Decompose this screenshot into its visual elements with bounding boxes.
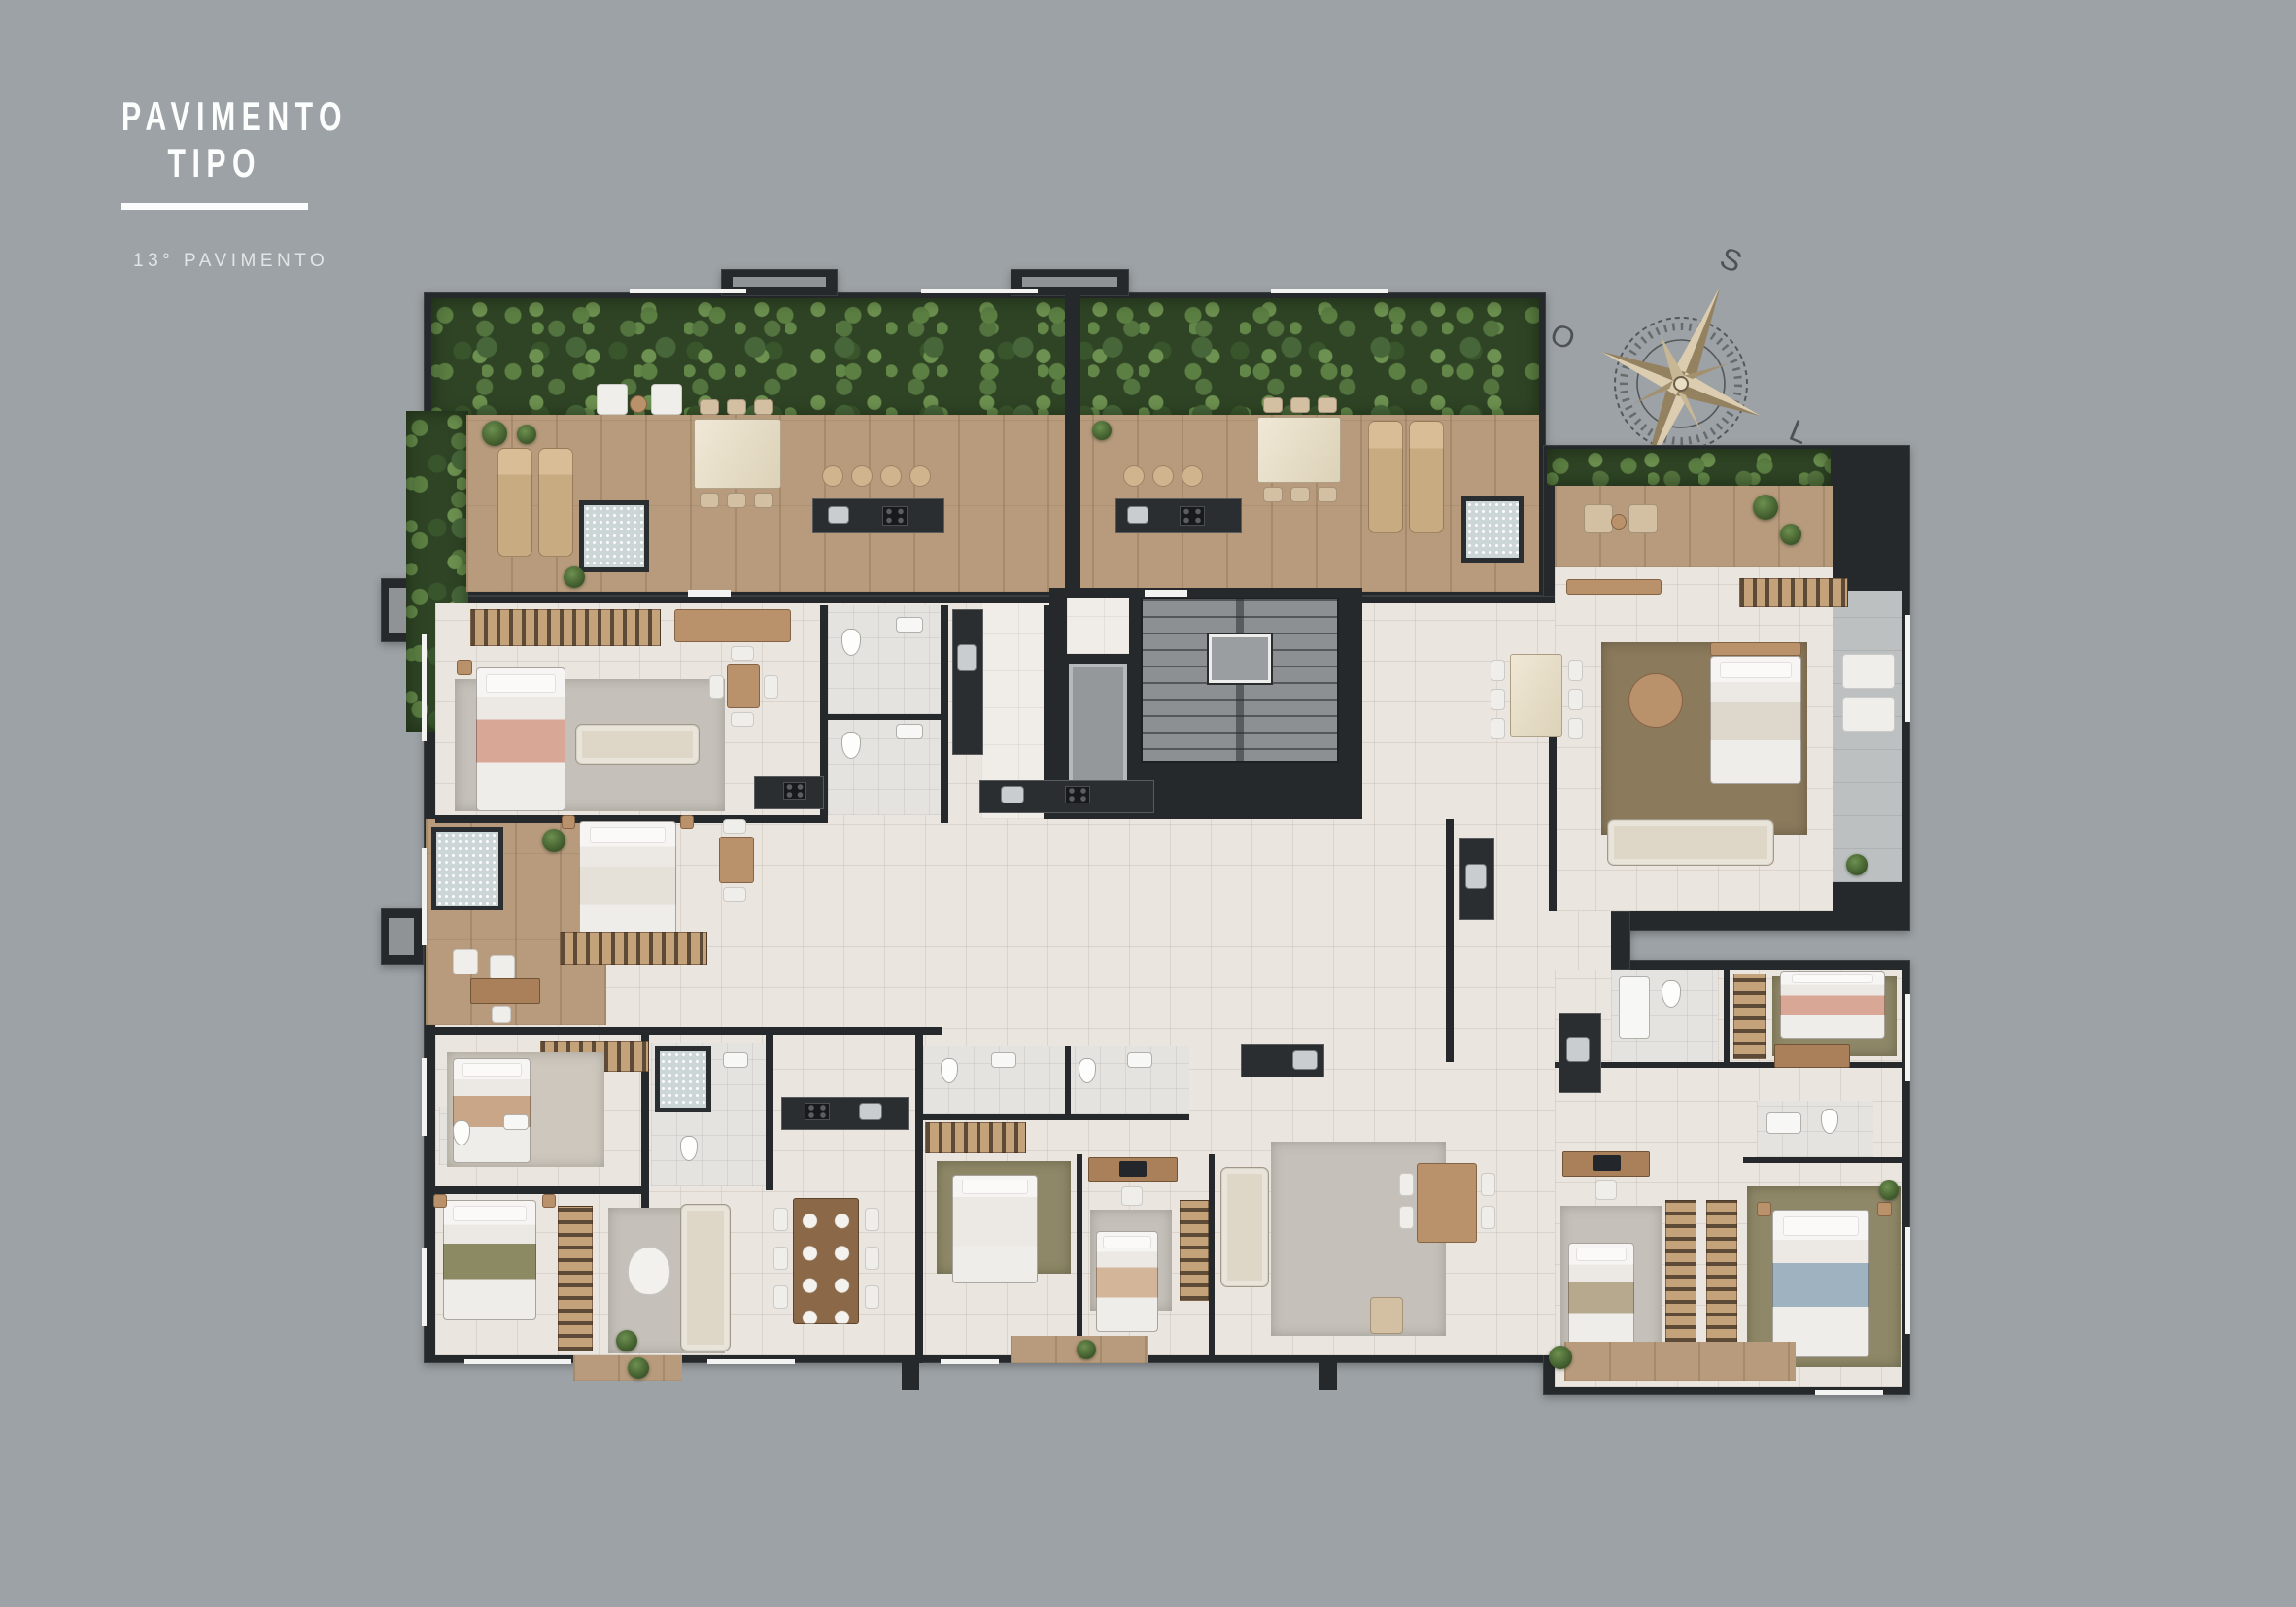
bathtub <box>1619 976 1650 1039</box>
dining-chair <box>773 1285 788 1309</box>
sofa <box>1220 1167 1269 1287</box>
potted-plant <box>1077 1340 1096 1359</box>
page-title: PAVIMENTO TIPO <box>121 93 308 188</box>
dining-chair <box>1568 718 1583 739</box>
coffee-table <box>1628 673 1683 728</box>
outdoor-dining-table <box>1257 417 1341 483</box>
sink <box>1292 1050 1318 1070</box>
partition-wall <box>1077 1154 1082 1360</box>
window <box>422 848 427 945</box>
partition-wall <box>435 1186 645 1194</box>
glass-shower <box>655 1046 711 1112</box>
cooktop <box>783 782 806 800</box>
bed-bench <box>1710 642 1801 656</box>
dining-chair <box>723 819 746 834</box>
sink <box>859 1103 882 1120</box>
sofa <box>1607 819 1774 866</box>
dining-chair <box>754 399 773 415</box>
window <box>630 289 746 293</box>
sink <box>1566 1037 1590 1062</box>
tv-console <box>1566 579 1662 595</box>
armchair <box>1370 1297 1403 1334</box>
dining-table <box>719 837 754 883</box>
nightstand <box>680 815 694 829</box>
balcony-deck <box>1564 1342 1796 1381</box>
bed <box>453 1058 531 1163</box>
dining-chair <box>731 646 754 661</box>
roof-planter-inset <box>1020 275 1119 289</box>
window <box>422 1058 427 1136</box>
sun-lounger <box>1409 421 1444 533</box>
partition-wall <box>435 1027 942 1035</box>
window <box>1271 289 1388 293</box>
dining-chair <box>1491 660 1505 681</box>
dining-chair <box>773 1247 788 1270</box>
sofa <box>680 1204 731 1351</box>
wardrobe <box>1180 1200 1209 1301</box>
dining-chair <box>1481 1173 1495 1196</box>
partition-wall <box>915 1035 923 1363</box>
dining-chair <box>764 675 778 699</box>
potted-plant <box>1753 495 1778 520</box>
bar-stool <box>851 465 873 487</box>
sofa <box>575 724 700 765</box>
outdoor-sink <box>1127 506 1148 524</box>
bed <box>476 667 565 811</box>
wardrobe <box>1706 1200 1737 1355</box>
jacuzzi <box>1461 496 1524 563</box>
shoe-wardrobe <box>560 932 707 965</box>
single-bed <box>1568 1243 1634 1350</box>
nightstand <box>562 815 575 829</box>
desk-chair <box>1121 1186 1143 1206</box>
sink <box>896 617 923 633</box>
potted-plant <box>1549 1346 1572 1369</box>
dining-table <box>793 1198 859 1324</box>
page-title-line1: PAVIMENTO <box>121 93 308 140</box>
wardrobe <box>925 1122 1026 1153</box>
partition-wall <box>828 714 941 720</box>
kitchen-counter <box>781 1097 909 1130</box>
partition-wall <box>1065 1046 1071 1114</box>
sink <box>896 724 923 739</box>
dining-chair <box>1318 397 1337 413</box>
bed <box>579 821 676 947</box>
window <box>1905 994 1910 1081</box>
dining-chair <box>1481 1206 1495 1229</box>
partition-wall <box>923 1114 1189 1120</box>
dining-chair <box>1568 660 1583 681</box>
sink <box>1465 864 1487 889</box>
bed <box>1710 656 1801 784</box>
elevator-shaft <box>1067 662 1129 792</box>
potted-plant <box>517 425 536 444</box>
dining-chair <box>1491 718 1505 739</box>
barbecue-grill <box>882 506 908 526</box>
desk <box>1774 1044 1850 1068</box>
armchair <box>453 949 478 974</box>
title-underline <box>121 203 308 210</box>
potted-plant <box>616 1330 637 1351</box>
page-title-line2: TIPO <box>121 140 308 187</box>
dining-chair <box>1263 487 1283 502</box>
dining-chair <box>1491 689 1505 710</box>
armchair <box>490 955 515 980</box>
dining-chair <box>723 887 746 902</box>
wall-stub <box>902 1361 919 1390</box>
bed <box>443 1200 536 1320</box>
terrace-door <box>1145 590 1187 597</box>
side-ledge-inset <box>387 916 416 957</box>
page: PAVIMENTO TIPO 13° PAVIMENTO S O L N <box>0 0 2296 1607</box>
bed <box>1772 1210 1869 1357</box>
terrace-door <box>688 590 731 597</box>
terrace-green-wall-right <box>1547 449 1831 486</box>
dining-chair <box>731 712 754 727</box>
side-table <box>630 395 647 413</box>
potted-plant <box>1780 524 1801 545</box>
potted-plant <box>628 1357 649 1379</box>
bar-stool <box>909 465 931 487</box>
sink <box>723 1052 748 1068</box>
armchair <box>651 384 682 415</box>
bar-stool <box>880 465 902 487</box>
nightstand <box>542 1194 556 1208</box>
sun-lounger <box>1368 421 1403 533</box>
balcony-lounge-chair <box>1842 654 1895 689</box>
armchair <box>1628 504 1658 533</box>
dining-table <box>1417 1163 1477 1243</box>
kitchen-counter <box>952 609 983 755</box>
wardrobe <box>1733 974 1766 1059</box>
nightstand <box>1757 1202 1771 1216</box>
nightstand <box>1877 1202 1892 1216</box>
glass-shower <box>431 827 503 910</box>
window <box>422 1248 427 1326</box>
kitchen-cabinet <box>674 609 791 642</box>
partition-wall <box>1743 1157 1902 1163</box>
dining-chair <box>865 1285 879 1309</box>
stair-landing <box>1209 634 1271 683</box>
window <box>921 289 1038 293</box>
dining-chair <box>1318 487 1337 502</box>
dining-chair <box>1399 1173 1414 1196</box>
dining-chair <box>700 399 719 415</box>
dining-chair <box>727 493 746 508</box>
partition-wall <box>1446 819 1454 1062</box>
nightstand <box>457 660 472 675</box>
bar-stool <box>1182 465 1203 487</box>
dining-chair <box>1290 397 1310 413</box>
dining-chair <box>865 1247 879 1270</box>
outdoor-dining-table <box>694 419 781 489</box>
monitor <box>1593 1155 1621 1171</box>
window <box>464 1359 571 1364</box>
desk-chair <box>492 1006 511 1023</box>
title-block: PAVIMENTO TIPO 13° PAVIMENTO <box>121 93 380 272</box>
desk <box>470 978 540 1004</box>
dining-chair <box>1568 689 1583 710</box>
potted-plant <box>564 566 585 588</box>
wardrobe <box>1739 578 1848 607</box>
core-lobby <box>1067 598 1129 654</box>
dining-chair <box>1263 397 1283 413</box>
window <box>422 634 427 741</box>
floor-plan <box>396 275 1912 1402</box>
dining-chair <box>754 493 773 508</box>
potted-plant <box>1879 1180 1899 1200</box>
jacuzzi <box>579 500 649 572</box>
sink <box>991 1052 1016 1068</box>
window <box>1905 615 1910 722</box>
window <box>1815 1390 1883 1395</box>
terrace-divider-wall <box>1065 294 1080 594</box>
dining-chair <box>727 399 746 415</box>
sink <box>503 1114 529 1130</box>
outdoor-sink <box>828 506 849 524</box>
dining-chair <box>773 1208 788 1231</box>
dining-chair <box>709 675 724 699</box>
dining-chair <box>700 493 719 508</box>
lounge-chair <box>628 1247 670 1295</box>
nightstand <box>433 1194 447 1208</box>
armchair <box>597 384 628 415</box>
wardrobe <box>558 1206 593 1351</box>
barbecue-grill <box>1180 506 1205 526</box>
wardrobe <box>470 609 661 646</box>
dining-chair <box>1290 487 1310 502</box>
sun-lounger <box>538 448 573 557</box>
partition-wall <box>766 1035 773 1190</box>
roof-planter-inset <box>731 275 828 289</box>
window <box>941 1359 999 1364</box>
window <box>1905 1227 1910 1334</box>
sink <box>1127 1052 1152 1068</box>
bar-stool <box>1152 465 1174 487</box>
sink <box>1766 1112 1801 1134</box>
floor-label: 13° PAVIMENTO <box>133 251 380 272</box>
partition-wall <box>1209 1154 1215 1360</box>
dining-table <box>1510 654 1562 737</box>
bar-stool <box>822 465 843 487</box>
balcony-lounge-chair <box>1842 697 1895 732</box>
sun-lounger <box>497 448 532 557</box>
bed <box>952 1175 1038 1283</box>
cooktop <box>1065 786 1090 803</box>
sink <box>1001 786 1024 803</box>
window <box>707 1359 795 1364</box>
monitor <box>1119 1161 1147 1177</box>
single-bed <box>1096 1231 1158 1332</box>
balcony-right-top <box>1833 591 1902 882</box>
wardrobe <box>1665 1200 1696 1355</box>
side-table <box>1611 514 1627 530</box>
cooktop <box>805 1103 830 1120</box>
sink <box>957 644 977 671</box>
wall-stub <box>1319 1361 1337 1390</box>
potted-plant <box>1846 854 1868 875</box>
bed <box>1780 971 1885 1039</box>
armchair <box>1584 504 1613 533</box>
potted-plant <box>1092 421 1112 440</box>
bar-stool <box>1123 465 1145 487</box>
potted-plant <box>482 421 507 446</box>
dining-table <box>727 664 760 708</box>
desk-chair <box>1595 1180 1617 1200</box>
dining-chair <box>1399 1206 1414 1229</box>
dining-chair <box>865 1208 879 1231</box>
compass-label-south: S <box>1715 240 1746 279</box>
potted-plant <box>542 829 565 852</box>
partition-wall <box>1724 970 1730 1067</box>
partition-wall <box>941 605 948 823</box>
